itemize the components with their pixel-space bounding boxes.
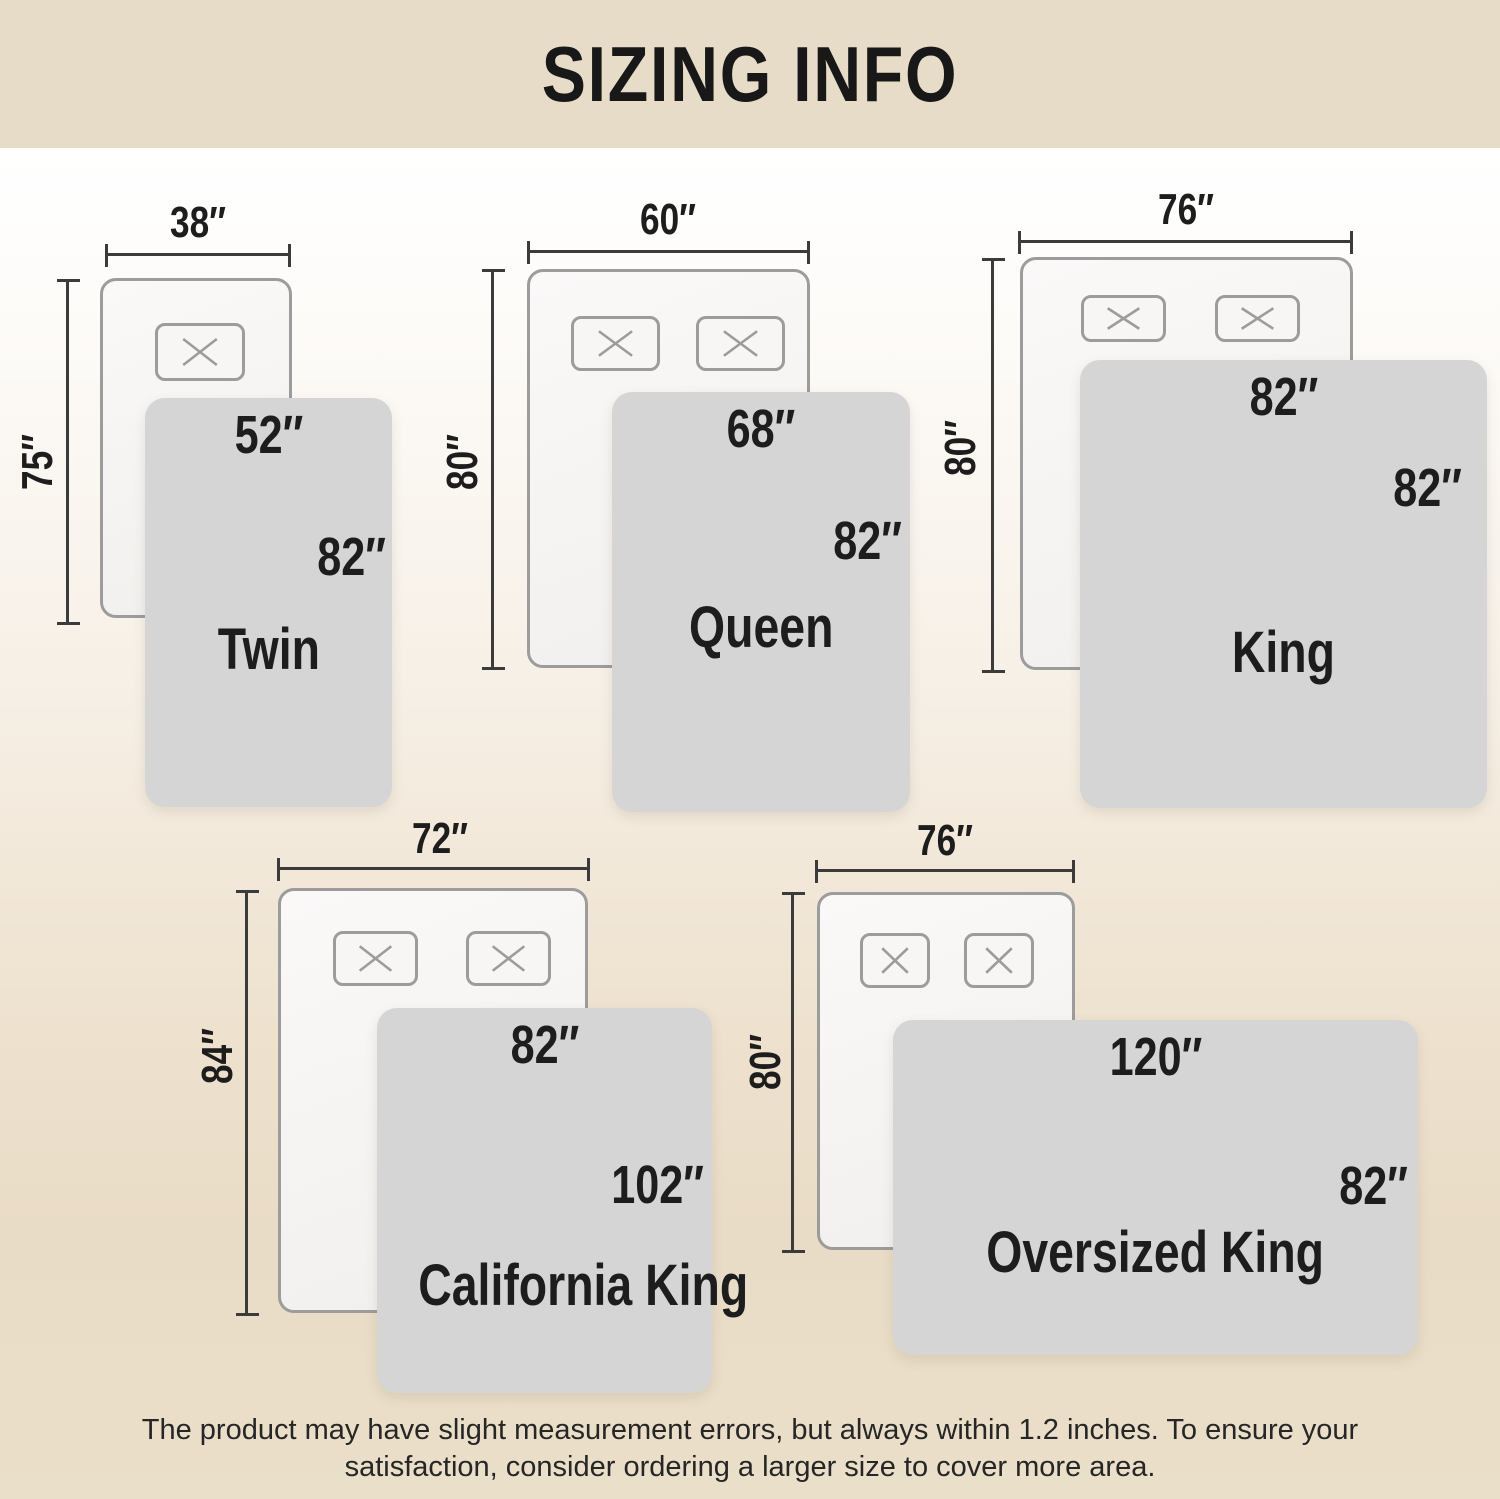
pillow-icon: [571, 316, 660, 371]
pillow-icon: [964, 933, 1034, 988]
size-name: California King: [377, 1258, 712, 1313]
mattress-width-label: 76″: [910, 816, 980, 866]
blanket-width-label: 82″: [1080, 366, 1487, 428]
blanket-length-label: 102″: [588, 1154, 704, 1216]
disclaimer-line-2: satisfaction, consider ordering a larger…: [0, 1449, 1500, 1486]
size-name: King: [1080, 625, 1487, 680]
blanket-length-label: 82″: [1322, 1155, 1408, 1217]
size-name: Twin: [145, 622, 392, 677]
mattress-width-label: 76″: [1151, 185, 1221, 235]
blanket: 82″ 82″ King: [1080, 360, 1487, 808]
blanket-width-label: 52″: [145, 404, 392, 466]
blanket: 52″ 82″ Twin: [145, 398, 392, 807]
pillow-x-icon: [863, 936, 927, 985]
blanket: 120″ 82″ Oversized King: [893, 1020, 1418, 1355]
blanket-width-label: 82″: [377, 1014, 712, 1076]
blanket-width-label: 68″: [612, 398, 910, 460]
pillow-x-icon: [158, 326, 242, 378]
width-dimension-line: [1018, 240, 1353, 243]
size-name: Oversized King: [893, 1225, 1418, 1280]
mattress-width-label: 38″: [163, 198, 233, 248]
mattress-length-label: 84″: [193, 1021, 243, 1091]
mattress-length-label: 80″: [438, 427, 488, 497]
disclaimer-text: The product may have slight measurement …: [0, 1412, 1500, 1486]
width-dimension-line: [277, 867, 590, 870]
length-dimension-line: [66, 279, 69, 625]
pillow-icon: [333, 931, 418, 986]
length-dimension-line: [491, 269, 494, 670]
mattress-length-label: 80″: [936, 413, 986, 483]
size-name: Queen: [612, 600, 910, 655]
width-dimension-line: [527, 250, 810, 253]
blanket-width-label: 120″: [893, 1026, 1418, 1088]
pillow-x-icon: [967, 936, 1031, 985]
length-dimension-line: [245, 890, 248, 1316]
length-dimension-line: [991, 258, 994, 673]
mattress-width-label: 72″: [405, 814, 475, 864]
top-banner: SIZING INFO: [0, 0, 1500, 148]
pillow-x-icon: [699, 319, 782, 368]
width-dimension-line: [105, 253, 291, 256]
blanket: 68″ 82″ Queen: [612, 392, 910, 812]
page-title: SIZING INFO: [542, 29, 959, 120]
pillow-x-icon: [1084, 298, 1163, 339]
blanket: 82″ 102″ California King: [377, 1008, 712, 1393]
pillow-x-icon: [574, 319, 657, 368]
pillow-icon: [860, 933, 930, 988]
pillow-icon: [1215, 295, 1300, 342]
blanket-length-label: 82″: [816, 510, 902, 572]
blanket-length-label: 82″: [300, 526, 386, 588]
mattress-width-label: 60″: [633, 195, 703, 245]
sizing-info-page: SIZING INFO 38″ 75″ 52″ 82″ Twin 60″ 80″: [0, 0, 1500, 1499]
pillow-x-icon: [469, 934, 548, 983]
pillow-icon: [155, 323, 245, 381]
length-dimension-line: [791, 892, 794, 1253]
pillow-icon: [1081, 295, 1166, 342]
mattress-length-label: 80″: [741, 1027, 791, 1097]
pillow-x-icon: [1218, 298, 1297, 339]
pillow-icon: [696, 316, 785, 371]
mattress-length-label: 75″: [13, 427, 63, 497]
pillow-icon: [466, 931, 551, 986]
pillow-x-icon: [336, 934, 415, 983]
blanket-length-label: 82″: [1376, 457, 1462, 519]
disclaimer-line-1: The product may have slight measurement …: [0, 1412, 1500, 1449]
width-dimension-line: [815, 869, 1075, 872]
